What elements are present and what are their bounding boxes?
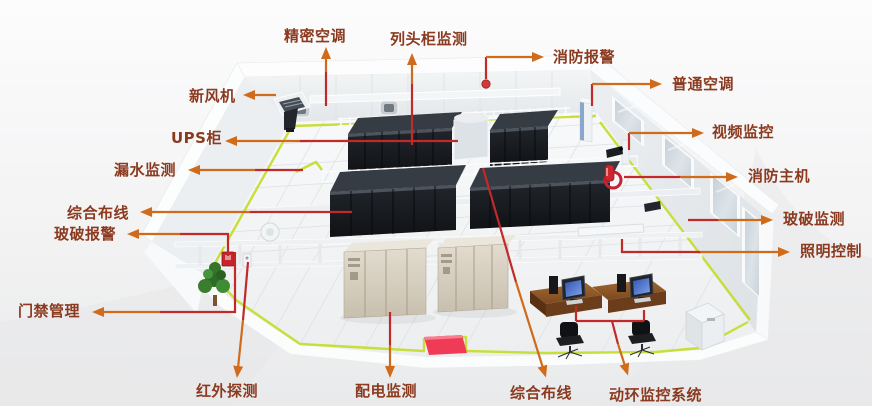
label-glass-break-alarm: 玻破报警 [54,226,116,242]
label-glass-break-detection: 玻破监测 [783,211,845,227]
label-ups-cabinet: UPS柜 [171,130,222,146]
datacenter-monitoring-diagram: 精密空调 列头柜监测 消防报警 新风机 普通空调 UPS柜 视频监控 漏水监测 … [0,0,872,406]
label-water-leak-detection: 漏水监测 [114,162,176,178]
label-integrated-cabling-left: 综合布线 [67,205,129,221]
label-lighting-control: 照明控制 [800,243,862,259]
label-fire-alarm: 消防报警 [553,49,615,65]
label-integrated-cabling-bottom: 综合布线 [510,385,572,401]
label-power-distribution-monitoring: 配电监测 [355,383,417,399]
label-ordinary-ac: 普通空调 [672,76,734,92]
label-row-head-cabinet-monitoring: 列头柜监测 [390,31,468,47]
label-fresh-air-unit: 新风机 [189,88,236,104]
smoke-detector-icon [482,80,490,88]
label-fire-control-host: 消防主机 [748,168,810,184]
alarm-bell-icon [261,223,279,241]
row-head-cabinet [454,117,488,160]
label-access-control: 门禁管理 [18,303,80,319]
reception-podium [686,303,724,350]
pc-tower-icon [617,274,626,292]
label-video-surveillance: 视频监控 [712,124,774,140]
room-illustration [0,0,872,406]
entrance-mat [424,335,467,355]
pc-tower-icon [549,276,558,294]
label-precision-ac: 精密空调 [284,28,346,44]
label-infrared-detection: 红外探测 [196,383,258,399]
label-env-monitoring-system: 动环监控系统 [609,387,702,403]
